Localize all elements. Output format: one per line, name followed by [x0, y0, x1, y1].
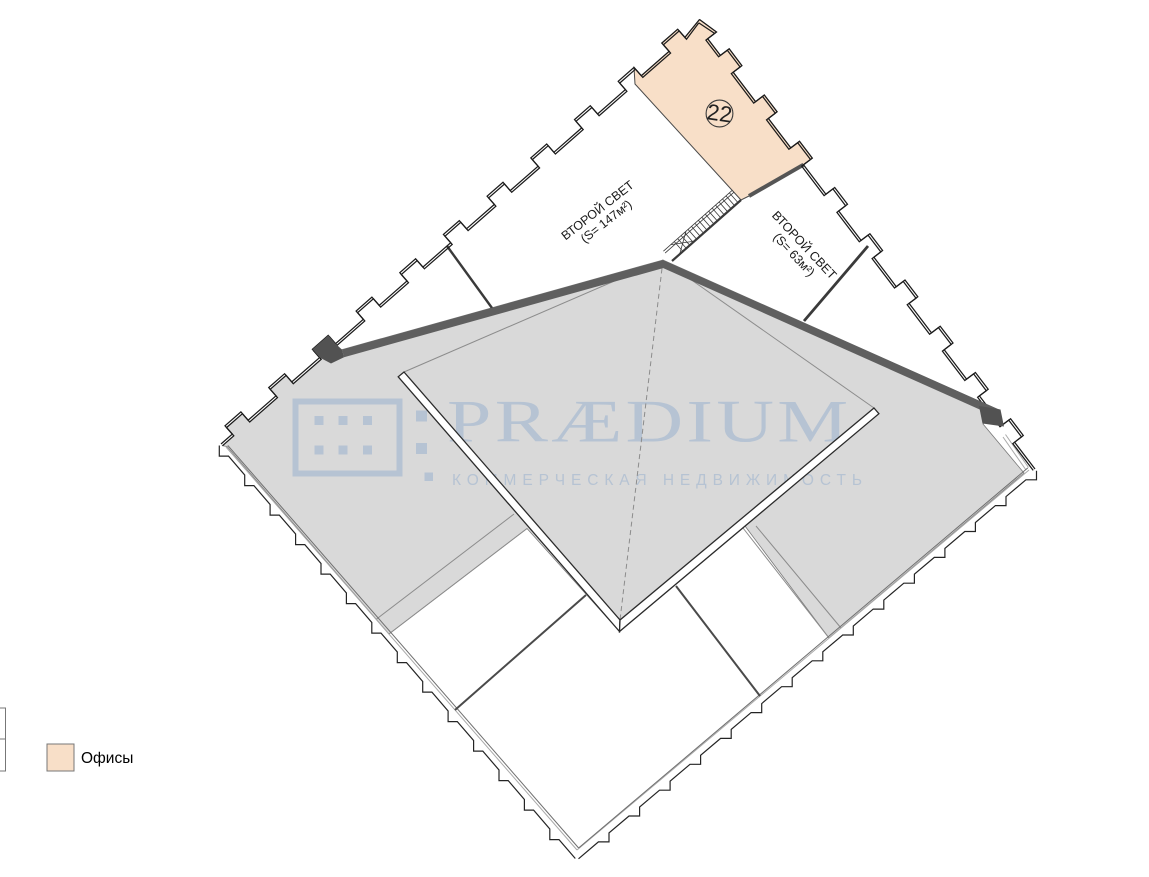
svg-text:PRÆDIUM: PRÆDIUM	[447, 389, 852, 455]
svg-text:Офисы: Офисы	[81, 750, 133, 767]
svg-text:22: 22	[705, 99, 733, 127]
